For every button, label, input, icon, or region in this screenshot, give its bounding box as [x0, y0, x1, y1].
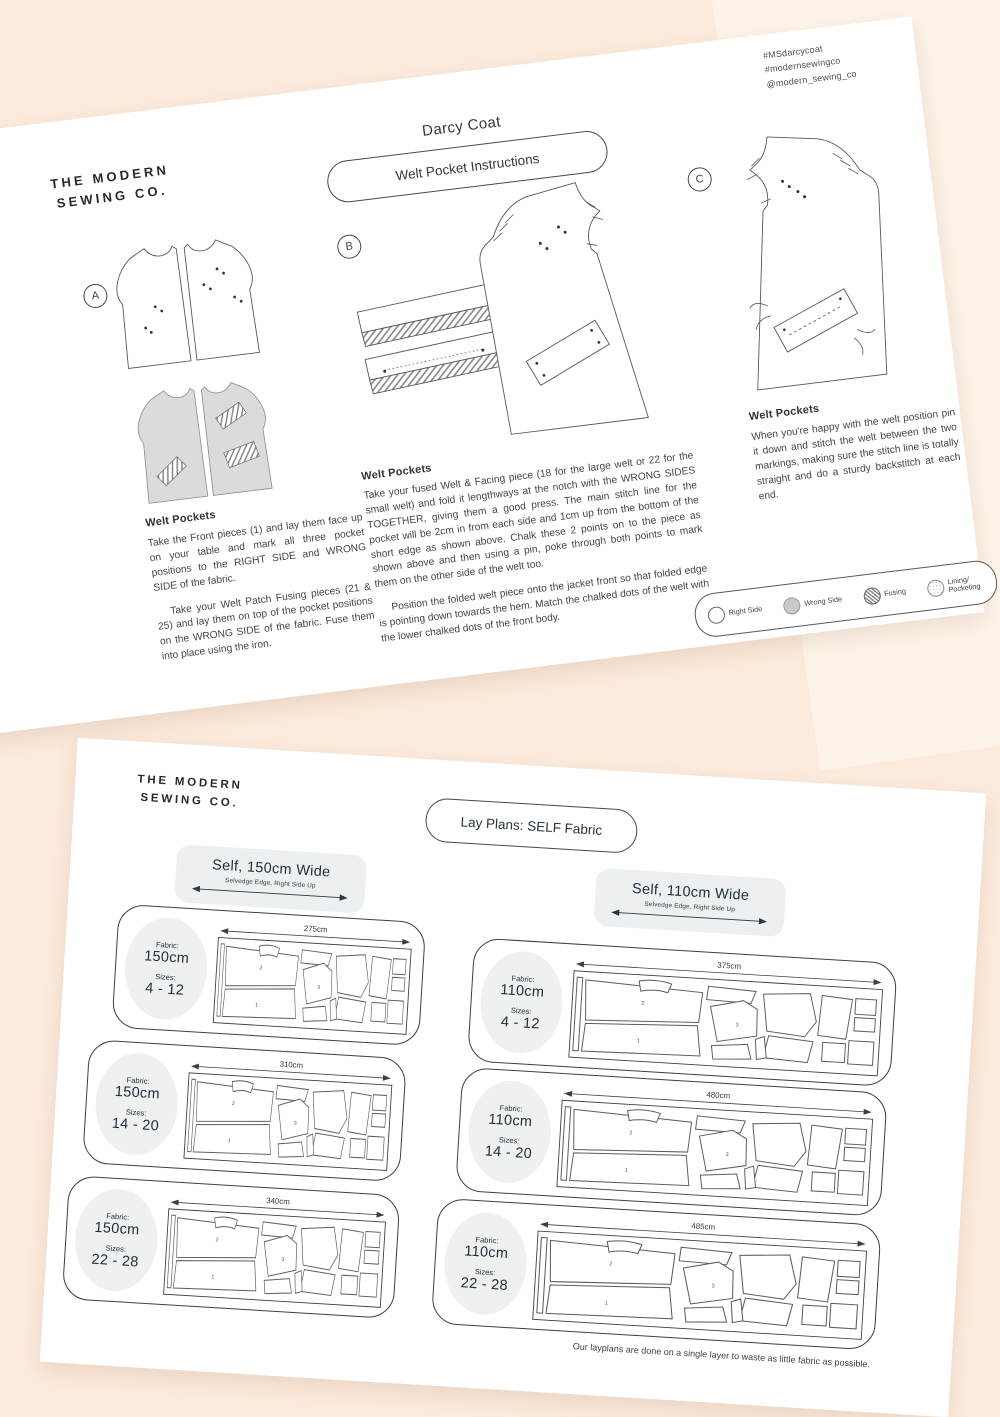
- fabric-width: 150cm: [144, 948, 190, 967]
- svg-text:1: 1: [228, 1138, 231, 1144]
- legend-label: Fusing: [884, 587, 907, 598]
- diagram-b-jacket-front: [458, 171, 667, 443]
- svg-text:2: 2: [609, 1261, 612, 1267]
- layplan-diagram: 480cm 2 1 3: [554, 1080, 876, 1209]
- svg-text:3: 3: [735, 1022, 738, 1028]
- svg-text:375cm: 375cm: [717, 961, 742, 971]
- svg-text:3: 3: [317, 985, 320, 991]
- layplan-card-150-sizes-22-28: Fabric: 150cm Sizes: 22 - 28 340cm 2 1 3: [62, 1175, 401, 1319]
- layplan-diagram: 310cm 2 1 3: [181, 1052, 395, 1174]
- layplan-card-110-sizes-22-28: Fabric: 110cm Sizes: 22 - 28 485cm 2 1 3: [431, 1198, 882, 1351]
- subtitle-text: Welt Pocket Instructions: [395, 150, 540, 183]
- step-letter-b: B: [336, 233, 363, 260]
- social-hashtags: #MSdarcycoat #modernsewingco @modern_sew…: [762, 38, 857, 92]
- fabric-info-oval: Fabric: 150cm Sizes: 14 - 20: [93, 1051, 181, 1158]
- layplan-footnote: Our layplans are done on a single layer …: [512, 1337, 932, 1373]
- lining-swatch-icon: [926, 578, 945, 597]
- sizes-range: 14 - 20: [484, 1143, 532, 1162]
- section-b-text: Take your fused Welt & Facing piece (18 …: [363, 449, 713, 657]
- svg-text:1: 1: [211, 1274, 214, 1280]
- legend-item-fusing: Fusing: [862, 583, 907, 605]
- sizes-range: 22 - 28: [460, 1275, 508, 1294]
- diagram-a-fronts-wrong-side: [119, 369, 289, 511]
- column-header-110cm: Self, 110cm Wide Selvedge Edge, Right Si…: [593, 868, 786, 937]
- svg-text:1: 1: [637, 1038, 640, 1044]
- legend-item-right-side: Right Side: [707, 601, 763, 625]
- fabric-width: 110cm: [464, 1243, 509, 1262]
- layplan-diagram: 485cm 2 1 3: [530, 1211, 870, 1343]
- svg-text:3: 3: [293, 1120, 296, 1126]
- fabric-info-oval: Fabric: 110cm Sizes: 4 - 12: [478, 949, 566, 1056]
- section-a-heading: Welt Pockets: [145, 509, 217, 530]
- section-c-text: When you're happy with the welt position…: [751, 406, 965, 515]
- svg-text:275cm: 275cm: [304, 924, 328, 934]
- section-b-heading: Welt Pockets: [361, 462, 433, 483]
- step-letter-a: A: [82, 283, 109, 310]
- fabric-info-oval: Fabric: 110cm Sizes: 22 - 28: [442, 1210, 530, 1317]
- brand-logo: THE MODERN SEWING CO.: [49, 160, 172, 215]
- layplan-diagram: 340cm 2 1 3: [161, 1188, 389, 1311]
- layplan-card-110-sizes-14-20: Fabric: 110cm Sizes: 14 - 20 480cm 2 1 3: [455, 1067, 888, 1217]
- sizes-range: 4 - 12: [500, 1014, 540, 1032]
- svg-text:2: 2: [232, 1101, 235, 1107]
- svg-text:3: 3: [725, 1152, 728, 1158]
- wrong-side-swatch-icon: [782, 596, 801, 615]
- svg-text:340cm: 340cm: [266, 1196, 291, 1206]
- sizes-range: 14 - 20: [111, 1115, 159, 1134]
- section-a-text: Take the Front pieces (1) and lay them f…: [147, 511, 378, 675]
- section-c-heading: Welt Pockets: [748, 403, 820, 424]
- fabric-info-oval: Fabric: 150cm Sizes: 4 - 12: [122, 915, 210, 1022]
- sizes-range: 4 - 12: [145, 980, 185, 998]
- fabric-info-oval: Fabric: 150cm Sizes: 22 - 28: [72, 1187, 160, 1294]
- svg-text:1: 1: [625, 1168, 628, 1174]
- fabric-width: 150cm: [94, 1219, 140, 1238]
- layplan-title-pill: Lay Plans: SELF Fabric: [424, 797, 638, 854]
- fabric-width: 150cm: [114, 1083, 160, 1102]
- legend-item-wrong-side: Wrong Side: [782, 591, 843, 615]
- layplan-sheet: THE MODERN SEWING CO. Lay Plans: SELF Fa…: [40, 738, 986, 1417]
- legend-item-lining: Lining/ Pocketing: [926, 573, 985, 597]
- layplan-card-150-sizes-14-20: Fabric: 150cm Sizes: 14 - 20 310cm 2 1 3: [82, 1039, 407, 1182]
- paragraph: Take your Welt Patch Fusing pieces (21 &…: [156, 580, 378, 665]
- svg-text:3: 3: [281, 1257, 284, 1263]
- svg-text:2: 2: [629, 1130, 632, 1136]
- svg-text:480cm: 480cm: [706, 1090, 731, 1100]
- fabric-width: 110cm: [500, 982, 545, 1001]
- paragraph: When you're happy with the welt position…: [751, 406, 964, 505]
- svg-text:3: 3: [711, 1283, 714, 1289]
- svg-text:2: 2: [259, 965, 262, 971]
- right-side-swatch-icon: [707, 605, 726, 624]
- layplan-diagram: 275cm 2 1 3: [211, 917, 415, 1039]
- svg-text:485cm: 485cm: [691, 1221, 716, 1231]
- legend-label: Lining/ Pocketing: [947, 573, 985, 594]
- fabric-info-oval: Fabric: 110cm Sizes: 14 - 20: [466, 1078, 554, 1185]
- svg-text:2: 2: [641, 1001, 644, 1007]
- svg-text:310cm: 310cm: [279, 1060, 303, 1070]
- sizes-range: 22 - 28: [91, 1251, 139, 1270]
- layplan-title-text: Lay Plans: SELF Fabric: [460, 814, 602, 838]
- legend-label: Right Side: [728, 605, 762, 617]
- brand-logo: THE MODERN SEWING CO.: [136, 772, 243, 814]
- svg-text:2: 2: [215, 1237, 218, 1243]
- fusing-swatch-icon: [862, 586, 881, 605]
- diagram-a-fronts-right-side: [103, 226, 271, 383]
- layplan-diagram: 375cm 2 1 3: [566, 950, 886, 1079]
- column-header-150cm: Self, 150cm Wide Selvedge Edge, Right Si…: [174, 844, 367, 913]
- svg-text:1: 1: [605, 1301, 608, 1307]
- layplan-card-150-sizes-4-12: Fabric: 150cm Sizes: 4 - 12 275cm 2 1 3: [111, 904, 426, 1047]
- fabric-width: 110cm: [488, 1111, 533, 1130]
- layplan-card-110-sizes-4-12: Fabric: 110cm Sizes: 4 - 12 375cm 2 1 3: [467, 937, 898, 1087]
- legend-label: Wrong Side: [804, 595, 843, 608]
- svg-text:1: 1: [255, 1002, 258, 1008]
- diagram-c-jacket-front: [705, 119, 913, 399]
